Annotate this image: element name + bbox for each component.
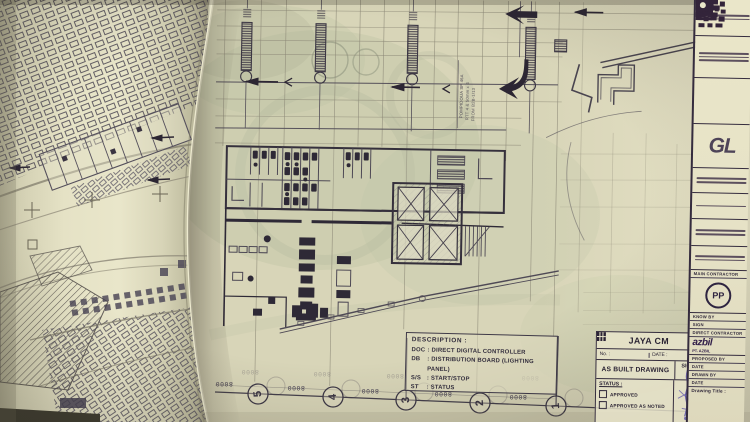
stamp-box xyxy=(694,78,750,125)
description-abbr: ST xyxy=(411,383,427,393)
stamp-text-lines xyxy=(695,229,745,235)
blueprint-photo: POMPIDOUA SP 46A RTT 4 & 50mm x 4 FROM B… xyxy=(0,0,750,422)
description-title: DESCRIPTION : xyxy=(412,336,552,346)
status-approved-as-noted-row: APPROVED AS NOTED xyxy=(599,401,673,410)
description-abbr: DOC xyxy=(411,346,427,356)
description-abbr: DB xyxy=(411,355,427,374)
jaya-status-label: STATUS : xyxy=(599,381,673,388)
stamp-box: GL xyxy=(693,124,750,169)
stamp-box xyxy=(691,219,748,247)
stamp-box xyxy=(692,168,748,194)
status-approved-row: APPROVED xyxy=(599,390,673,399)
description-box: DESCRIPTION : DOC : DIRECT DIGITAL CONTR… xyxy=(405,332,558,395)
gl-logo: GL xyxy=(708,134,736,159)
jaya-header: JAYA CM xyxy=(597,332,701,351)
pp-stamp-box: PP xyxy=(690,278,747,314)
stamp-box xyxy=(694,36,750,79)
stamp-text-lines xyxy=(695,255,745,261)
title-column: GL MAIN CONTRACTOR PP KNOW BY SIGN DIREC… xyxy=(686,0,750,422)
azbil-company-name: PT. AZBIL xyxy=(692,348,745,354)
description-abbr: S/S xyxy=(411,374,427,384)
jaya-status-column: STATUS : APPROVED APPROVED AS NOTED xyxy=(596,379,674,422)
jaya-drawing-type: AS BUILT DRAWING xyxy=(596,360,674,379)
stamp-text-lines xyxy=(696,177,746,183)
stamp-text-lines xyxy=(696,205,746,208)
jaya-logo-icon xyxy=(597,332,606,341)
approved-label: APPROVED xyxy=(610,392,638,397)
jaya-company-name: JAYA CM xyxy=(629,336,670,347)
pp-logo: PP xyxy=(705,282,731,308)
azbil-stamp-box: azbil PT. AZBIL xyxy=(689,337,745,356)
stamp-text-lines xyxy=(699,52,749,62)
drawing-title-label: Drawing Title : xyxy=(688,387,744,395)
approved-as-noted-label: APPROVED AS NOTED xyxy=(610,403,665,409)
jaya-status-area: STATUS : APPROVED APPROVED AS NOTED xyxy=(596,379,701,422)
approved-checkbox xyxy=(599,390,607,398)
stamp-box xyxy=(692,193,748,220)
stamp-box xyxy=(691,246,747,271)
approved-as-noted-checkbox xyxy=(599,401,607,409)
jaya-no-label: No. : xyxy=(597,352,649,358)
